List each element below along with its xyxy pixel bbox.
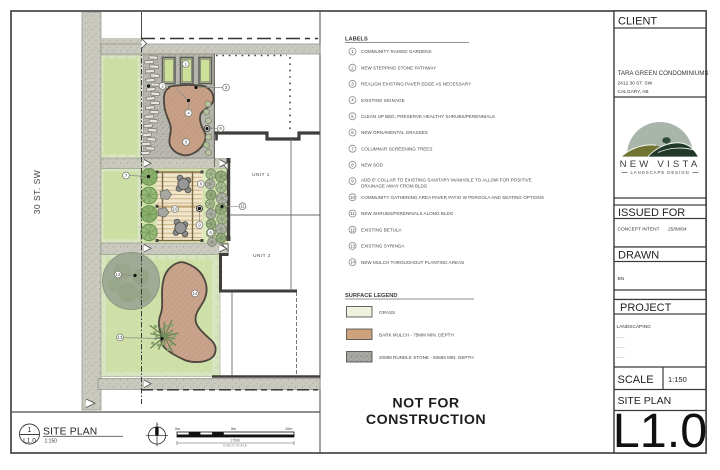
- svg-text:GRASS: GRASS: [379, 310, 395, 315]
- svg-text:REALIGN EXISTING PAVER EDGE AS: REALIGN EXISTING PAVER EDGE AS NECESSARY: [361, 82, 471, 87]
- svg-text:CLIENT: CLIENT: [618, 16, 657, 28]
- svg-text:CONCEPT INTENT: CONCEPT INTENT: [618, 227, 660, 233]
- svg-text:DRAWN: DRAWN: [618, 250, 659, 262]
- svg-text:10m: 10m: [285, 427, 292, 431]
- svg-text:NOT FOR: NOT FOR: [392, 396, 459, 412]
- svg-text:14: 14: [350, 260, 355, 265]
- svg-text:13: 13: [350, 244, 355, 249]
- svg-text:17590: 17590: [230, 439, 240, 443]
- svg-text:L1.0: L1.0: [613, 404, 707, 458]
- svg-text:14: 14: [193, 291, 198, 296]
- svg-text:BN: BN: [618, 276, 625, 282]
- svg-text:COMMUNITY RAISED GARDENS: COMMUNITY RAISED GARDENS: [361, 49, 432, 54]
- svg-text:-----: -----: [617, 335, 626, 341]
- svg-text:CALGARY, AB: CALGARY, AB: [618, 89, 649, 95]
- svg-text:12: 12: [350, 227, 355, 232]
- svg-text:ADD 6" COLLAR TO EXISTING SANI: ADD 6" COLLAR TO EXISTING SANITARY MANHO…: [361, 178, 532, 183]
- svg-text:11: 11: [350, 211, 355, 216]
- svg-text:CONSTRUCTION: CONSTRUCTION: [366, 412, 486, 428]
- svg-text:0m: 0m: [175, 427, 180, 431]
- svg-text:10: 10: [350, 195, 355, 200]
- svg-text:COMMUNITY GATHERING AREA PAVER: COMMUNITY GATHERING AREA PAVER PATIO W P…: [361, 195, 544, 200]
- svg-text:BARK MULCH - 75MM MIN. DEPTH: BARK MULCH - 75MM MIN. DEPTH: [379, 332, 454, 337]
- svg-text:12: 12: [116, 272, 121, 277]
- svg-text:LANDSCAPE DESIGN: LANDSCAPE DESIGN: [630, 170, 689, 175]
- svg-text:-----: -----: [617, 345, 626, 351]
- svg-text:UNIT 1: UNIT 1: [252, 172, 270, 177]
- svg-text:LABELS: LABELS: [345, 37, 368, 43]
- svg-text:10: 10: [173, 207, 178, 212]
- svg-text:NEW ORNAMENTAL GRASSES: NEW ORNAMENTAL GRASSES: [361, 130, 428, 135]
- svg-text:NEW SOD: NEW SOD: [361, 163, 384, 168]
- svg-text:30 ST. SW: 30 ST. SW: [32, 170, 42, 215]
- svg-text:1: 1: [28, 427, 32, 434]
- svg-text:EXISTING SIGNAGE: EXISTING SIGNAGE: [361, 98, 405, 103]
- svg-text:NEW VISTA: NEW VISTA: [620, 159, 701, 170]
- svg-text:13: 13: [118, 335, 123, 340]
- svg-text:DRAINAGE AWAY FROM BLDG: DRAINAGE AWAY FROM BLDG: [361, 183, 428, 188]
- svg-text:2412 30 ST. SW: 2412 30 ST. SW: [618, 81, 653, 87]
- svg-text:5m: 5m: [231, 427, 236, 431]
- svg-text:CLEAN UP BED, PRESERVE HEALTHY: CLEAN UP BED, PRESERVE HEALTHY SHRUBS/PE…: [361, 114, 495, 119]
- svg-text:NEW SHRUBS/PERENNIALS ALONG BL: NEW SHRUBS/PERENNIALS ALONG BLDG: [361, 211, 454, 216]
- svg-text:SURFACE LEGEND: SURFACE LEGEND: [345, 293, 397, 299]
- svg-text:NEW STEPPING STONE PATHWAY: NEW STEPPING STONE PATHWAY: [361, 65, 436, 70]
- svg-text:TARA GREEN CONDOMINIUMS: TARA GREEN CONDOMINIUMS: [618, 70, 709, 77]
- svg-text:-----: -----: [617, 355, 626, 361]
- svg-text:L1.0: L1.0: [23, 438, 36, 445]
- svg-text:20MM RUNDLE STONE - 50MM MIN.: 20MM RUNDLE STONE - 50MM MIN. DEPTH: [379, 355, 474, 360]
- svg-text:NEW MULCH THROUGHOUT PLANTING: NEW MULCH THROUGHOUT PLANTING AREAS: [361, 260, 464, 265]
- svg-text:EXISTING BETULA: EXISTING BETULA: [361, 227, 403, 232]
- svg-text:SCALE: SCALE: [618, 374, 654, 386]
- svg-text:25/08/04: 25/08/04: [668, 227, 687, 233]
- svg-text:PROJECT: PROJECT: [620, 302, 672, 314]
- svg-text:EXISTING SYRINGA: EXISTING SYRINGA: [361, 244, 405, 249]
- svg-text:SITE PLAN: SITE PLAN: [43, 427, 97, 438]
- svg-text:UNIT 2: UNIT 2: [253, 253, 271, 258]
- svg-text:1:150: 1:150: [45, 439, 58, 445]
- svg-text:1:150: 1:150: [668, 375, 687, 384]
- svg-text:ISSUED FOR: ISSUED FOR: [618, 207, 685, 219]
- svg-text:LANDSCAPING: LANDSCAPING: [617, 324, 652, 330]
- svg-text:11: 11: [240, 204, 245, 209]
- svg-text:N: N: [156, 422, 159, 426]
- svg-text:COLUMNAR SCREENING TREES: COLUMNAR SCREENING TREES: [361, 146, 432, 151]
- svg-text:CHECK SCALE: CHECK SCALE: [223, 444, 248, 448]
